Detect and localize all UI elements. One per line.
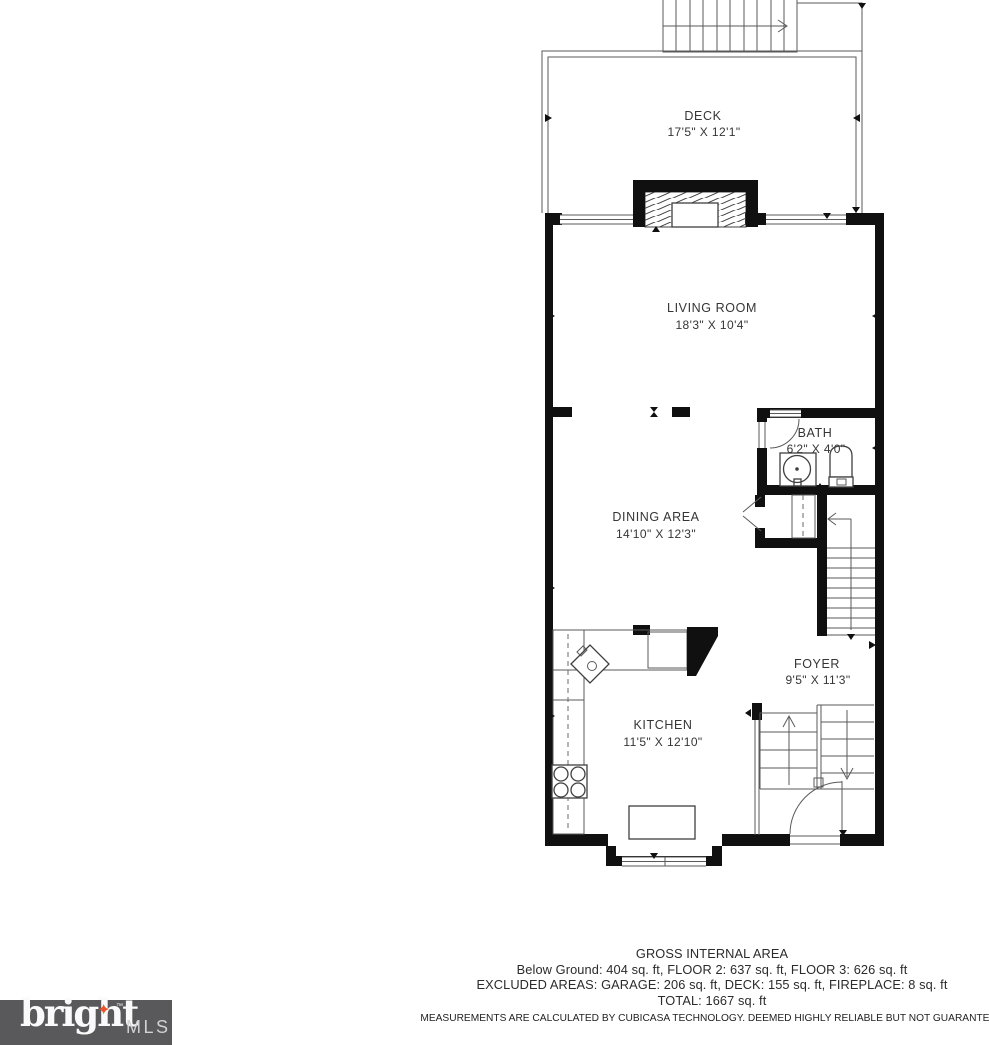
logo-star-icon: ✦ (97, 1000, 110, 1020)
foyer-staircase-icon (755, 705, 874, 835)
room-dims-bath: 6'2" X 4'0" (787, 442, 846, 456)
room-dims-foyer: 9'5" X 11'3" (785, 673, 850, 687)
area-summary-excluded: EXCLUDED AREAS: GARAGE: 206 sq. ft, DECK… (352, 977, 989, 993)
stove-icon (552, 765, 587, 798)
room-label-dining: DINING AREA (612, 510, 699, 524)
floor-plan: DECK 17'5" X 12'1" LIVING ROOM 18'3" X 1… (0, 0, 989, 1045)
area-summary-floors: Below Ground: 404 sq. ft, FLOOR 2: 637 s… (352, 962, 989, 978)
room-dims-kitchen: 11'5" X 12'10" (623, 735, 702, 749)
upper-staircase-icon (743, 495, 875, 635)
room-label-deck: DECK (684, 109, 721, 123)
room-dims-dining: 14'10" X 12'3" (616, 527, 696, 541)
bright-mls-logo: bright ✦ ™ MLS (0, 1000, 172, 1045)
room-label-bath: BATH (798, 426, 833, 440)
bath-sink-icon (780, 453, 816, 486)
area-summary-title: GROSS INTERNAL AREA (352, 946, 989, 962)
kitchen-corner-wall (687, 627, 718, 676)
room-dims-deck: 17'5" X 12'1" (667, 125, 740, 139)
logo-trademark: ™ (116, 1003, 123, 1010)
fireplace-icon (633, 180, 758, 227)
logo-brand-text: bright (20, 991, 137, 1035)
floor-plan-page: DECK 17'5" X 12'1" LIVING ROOM 18'3" X 1… (0, 0, 989, 1045)
room-label-kitchen: KITCHEN (633, 718, 692, 732)
measurement-disclaimer: MEASUREMENTS ARE CALCULATED BY CUBICASA … (352, 1011, 989, 1027)
logo-mls-text: MLS (126, 1017, 171, 1038)
area-summary-total: TOTAL: 1667 sq. ft (352, 993, 989, 1009)
room-dims-living: 18'3" X 10'4" (675, 318, 748, 332)
room-label-foyer: FOYER (794, 657, 840, 671)
area-summary: GROSS INTERNAL AREA Below Ground: 404 sq… (352, 946, 989, 1027)
kitchen-island (629, 806, 695, 839)
room-label-living: LIVING ROOM (667, 301, 757, 315)
deck-stairs-icon (663, 0, 797, 52)
kitchen-sink-icon (571, 645, 609, 683)
